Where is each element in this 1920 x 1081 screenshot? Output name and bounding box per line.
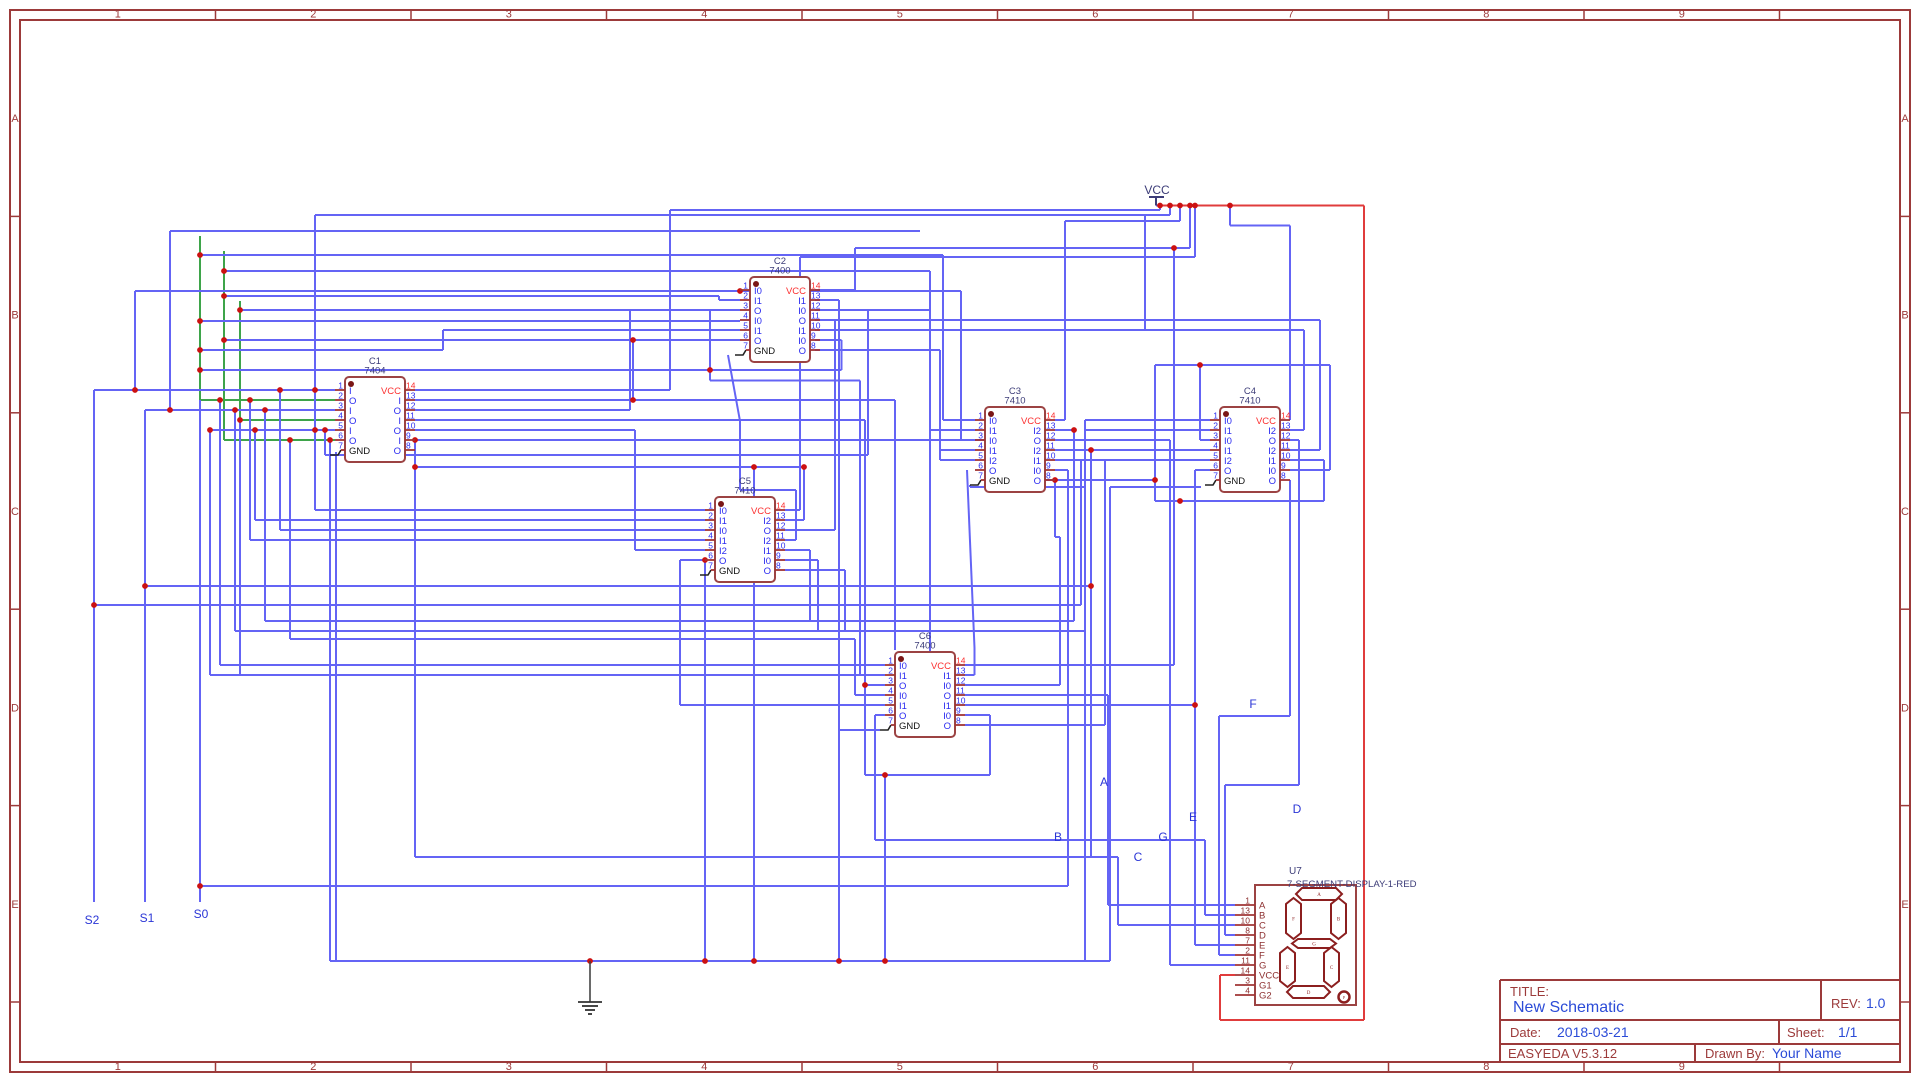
svg-text:9: 9: [776, 551, 781, 561]
svg-text:12: 12: [776, 521, 786, 531]
svg-text:GND: GND: [989, 476, 1010, 487]
svg-text:6: 6: [708, 551, 713, 561]
svg-text:O: O: [764, 566, 771, 577]
svg-text:5: 5: [743, 321, 748, 331]
svg-text:13: 13: [1046, 421, 1056, 431]
svg-text:C: C: [11, 506, 19, 518]
svg-text:10: 10: [956, 696, 966, 706]
svg-text:GND: GND: [899, 721, 920, 732]
svg-text:3: 3: [743, 301, 748, 311]
svg-text:7410: 7410: [1004, 396, 1025, 407]
svg-text:A: A: [1901, 113, 1909, 125]
svg-text:14: 14: [1241, 966, 1251, 976]
svg-text:3: 3: [506, 9, 512, 21]
svg-text:6: 6: [1213, 461, 1218, 471]
svg-text:D: D: [11, 702, 19, 714]
svg-text:14: 14: [956, 656, 966, 666]
svg-text:O: O: [799, 346, 806, 357]
svg-text:GND: GND: [719, 566, 740, 577]
svg-text:7: 7: [1213, 471, 1218, 481]
svg-text:3: 3: [978, 431, 983, 441]
svg-text:Sheet:: Sheet:: [1787, 1025, 1825, 1040]
svg-text:E: E: [1286, 966, 1289, 971]
svg-text:3: 3: [888, 676, 893, 686]
svg-text:7: 7: [338, 441, 343, 451]
svg-text:4: 4: [701, 9, 707, 21]
svg-text:1.0: 1.0: [1866, 995, 1886, 1011]
svg-text:8: 8: [956, 716, 961, 726]
svg-text:GND: GND: [349, 446, 370, 457]
svg-text:11: 11: [811, 311, 820, 321]
svg-text:4: 4: [1245, 986, 1250, 996]
svg-text:2: 2: [978, 421, 983, 431]
svg-text:7410: 7410: [734, 486, 755, 497]
svg-text:5: 5: [897, 9, 903, 21]
svg-text:7: 7: [1288, 9, 1294, 21]
svg-text:C: C: [1134, 850, 1143, 864]
svg-text:7: 7: [888, 716, 893, 726]
svg-text:5: 5: [978, 451, 983, 461]
svg-text:7404: 7404: [364, 366, 385, 377]
svg-text:A: A: [11, 113, 19, 125]
svg-text:11: 11: [1046, 441, 1055, 451]
svg-text:O: O: [1034, 476, 1041, 487]
svg-text:6: 6: [1092, 9, 1098, 21]
svg-text:8: 8: [406, 441, 411, 451]
svg-text:9: 9: [956, 706, 961, 716]
svg-text:7410: 7410: [1239, 396, 1260, 407]
svg-text:7: 7: [708, 561, 713, 571]
svg-text:3: 3: [1213, 431, 1218, 441]
svg-text:9: 9: [1281, 461, 1286, 471]
svg-text:11: 11: [1241, 956, 1250, 966]
svg-text:12: 12: [811, 301, 821, 311]
svg-text:C: C: [1901, 506, 1909, 518]
svg-text:B: B: [1054, 830, 1062, 844]
svg-text:6: 6: [1092, 1061, 1098, 1073]
svg-text:3: 3: [506, 1061, 512, 1073]
svg-text:O: O: [1269, 476, 1276, 487]
svg-text:14: 14: [1281, 411, 1291, 421]
svg-text:9: 9: [1046, 461, 1051, 471]
svg-text:12: 12: [1281, 431, 1291, 441]
svg-text:2: 2: [338, 391, 343, 401]
svg-text:4: 4: [708, 531, 713, 541]
svg-text:8: 8: [1483, 1061, 1489, 1073]
svg-text:13: 13: [1281, 421, 1291, 431]
svg-text:8: 8: [1281, 471, 1286, 481]
svg-text:F: F: [1292, 918, 1295, 923]
svg-text:9: 9: [811, 331, 816, 341]
svg-text:S2: S2: [85, 913, 100, 927]
svg-text:B: B: [11, 310, 18, 322]
svg-text:8: 8: [1483, 9, 1489, 21]
svg-text:1/1: 1/1: [1838, 1024, 1858, 1040]
svg-text:1: 1: [1213, 411, 1218, 421]
svg-text:10: 10: [811, 321, 821, 331]
svg-text:4: 4: [1213, 441, 1218, 451]
svg-text:Your Name: Your Name: [1772, 1045, 1842, 1061]
svg-text:9: 9: [406, 431, 411, 441]
svg-text:13: 13: [1241, 906, 1251, 916]
svg-text:2: 2: [743, 291, 748, 301]
svg-text:Date:: Date:: [1510, 1025, 1541, 1040]
svg-text:13: 13: [811, 291, 821, 301]
svg-text:S0: S0: [194, 907, 209, 921]
svg-text:9: 9: [1679, 9, 1685, 21]
svg-text:EASYEDA V5.3.12: EASYEDA V5.3.12: [1508, 1046, 1617, 1061]
svg-text:12: 12: [956, 676, 966, 686]
svg-text:D: D: [1901, 702, 1909, 714]
svg-text:14: 14: [406, 381, 416, 391]
svg-text:1: 1: [888, 656, 893, 666]
svg-text:2: 2: [708, 511, 713, 521]
svg-text:7: 7: [1245, 936, 1250, 946]
svg-text:14: 14: [776, 501, 786, 511]
svg-text:1: 1: [708, 501, 713, 511]
svg-text:1: 1: [978, 411, 983, 421]
svg-text:8: 8: [1046, 471, 1051, 481]
svg-text:1: 1: [1245, 896, 1250, 906]
svg-text:4: 4: [888, 686, 893, 696]
svg-text:14: 14: [811, 281, 821, 291]
svg-text:12: 12: [406, 401, 416, 411]
svg-text:O: O: [394, 446, 401, 457]
svg-text:TITLE:: TITLE:: [1510, 984, 1549, 999]
svg-text:3: 3: [338, 401, 343, 411]
svg-text:E: E: [1901, 899, 1908, 911]
svg-text:E: E: [11, 899, 18, 911]
svg-text:10: 10: [1046, 451, 1056, 461]
svg-text:11: 11: [1281, 441, 1290, 451]
svg-text:O: O: [944, 721, 951, 732]
svg-text:New Schematic: New Schematic: [1513, 999, 1624, 1016]
svg-text:2: 2: [888, 666, 893, 676]
svg-text:2018-03-21: 2018-03-21: [1557, 1024, 1629, 1040]
svg-text:2: 2: [310, 1061, 316, 1073]
svg-text:13: 13: [406, 391, 416, 401]
svg-text:11: 11: [776, 531, 785, 541]
svg-text:12: 12: [1046, 431, 1056, 441]
svg-text:10: 10: [406, 421, 416, 431]
svg-text:10: 10: [1281, 451, 1291, 461]
svg-text:7400: 7400: [769, 266, 790, 277]
svg-text:7: 7: [743, 341, 748, 351]
svg-text:5: 5: [888, 696, 893, 706]
svg-text:8: 8: [776, 561, 781, 571]
svg-text:10: 10: [776, 541, 786, 551]
svg-text:A: A: [1317, 893, 1321, 898]
svg-text:7: 7: [978, 471, 983, 481]
svg-text:14: 14: [1046, 411, 1056, 421]
svg-text:2: 2: [1245, 946, 1250, 956]
svg-text:13: 13: [956, 666, 966, 676]
svg-text:9: 9: [1679, 1061, 1685, 1073]
svg-text:A: A: [1100, 775, 1108, 789]
svg-text:6: 6: [743, 331, 748, 341]
svg-text:1: 1: [115, 1061, 121, 1073]
svg-text:B: B: [1901, 310, 1908, 322]
svg-text:6: 6: [888, 706, 893, 716]
svg-text:VCC: VCC: [1144, 183, 1170, 197]
svg-text:GND: GND: [1224, 476, 1245, 487]
svg-text:4: 4: [978, 441, 983, 451]
svg-text:5: 5: [708, 541, 713, 551]
svg-text:4: 4: [701, 1061, 707, 1073]
svg-text:U7: U7: [1289, 866, 1302, 877]
svg-text:3: 3: [708, 521, 713, 531]
svg-text:2: 2: [1213, 421, 1218, 431]
svg-text:G: G: [1312, 943, 1316, 948]
svg-text:G: G: [1158, 830, 1167, 844]
svg-text:D: D: [1293, 802, 1302, 816]
svg-text:5: 5: [897, 1061, 903, 1073]
svg-text:11: 11: [406, 411, 415, 421]
svg-text:4: 4: [338, 411, 343, 421]
svg-text:8: 8: [1245, 926, 1250, 936]
svg-text:REV:: REV:: [1831, 996, 1861, 1011]
svg-text:8: 8: [811, 341, 816, 351]
svg-text:7: 7: [1288, 1061, 1294, 1073]
svg-text:4: 4: [743, 311, 748, 321]
svg-text:7400: 7400: [914, 641, 935, 652]
svg-text:Drawn By:: Drawn By:: [1705, 1046, 1765, 1061]
svg-text:GND: GND: [754, 346, 775, 357]
svg-text:5: 5: [1213, 451, 1218, 461]
svg-text:5: 5: [338, 421, 343, 431]
svg-text:3: 3: [1245, 976, 1250, 986]
svg-text:6: 6: [978, 461, 983, 471]
svg-text:E: E: [1189, 810, 1197, 824]
svg-text:13: 13: [776, 511, 786, 521]
svg-text:11: 11: [956, 686, 965, 696]
svg-text:S1: S1: [140, 911, 155, 925]
svg-text:D: D: [1307, 991, 1311, 996]
svg-text:1: 1: [338, 381, 343, 391]
svg-text:6: 6: [338, 431, 343, 441]
svg-text:10: 10: [1241, 916, 1251, 926]
svg-text:G2: G2: [1259, 991, 1272, 1002]
svg-text:1: 1: [115, 9, 121, 21]
svg-text:2: 2: [310, 9, 316, 21]
svg-text:1: 1: [743, 281, 748, 291]
svg-text:F: F: [1249, 697, 1256, 711]
